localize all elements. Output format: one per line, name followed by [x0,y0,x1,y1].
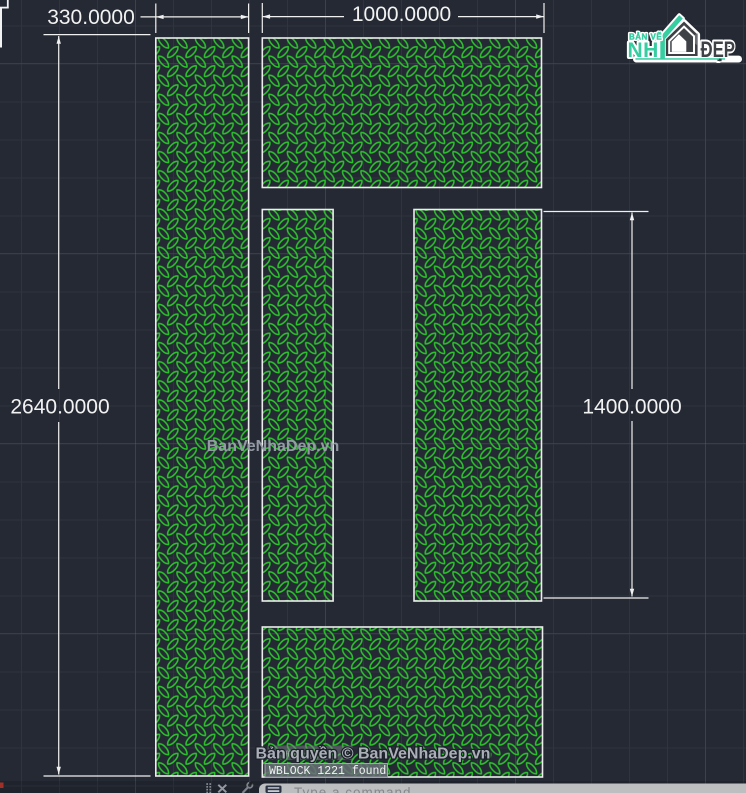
svg-text:Type a command: Type a command [294,785,412,793]
svg-text:WBLOCK 1221 found: WBLOCK 1221 found [269,765,386,778]
svg-text:2640.0000: 2640.0000 [10,396,109,419]
svg-text:Bản quyền © BanVeNhaDep.vn: Bản quyền © BanVeNhaDep.vn [256,746,491,763]
svg-text:1400.0000: 1400.0000 [582,396,681,419]
svg-text:1000.0000: 1000.0000 [352,3,451,26]
svg-text:330.0000: 330.0000 [47,6,135,29]
svg-text:BanVeNhaDep.vn: BanVeNhaDep.vn [207,438,339,455]
